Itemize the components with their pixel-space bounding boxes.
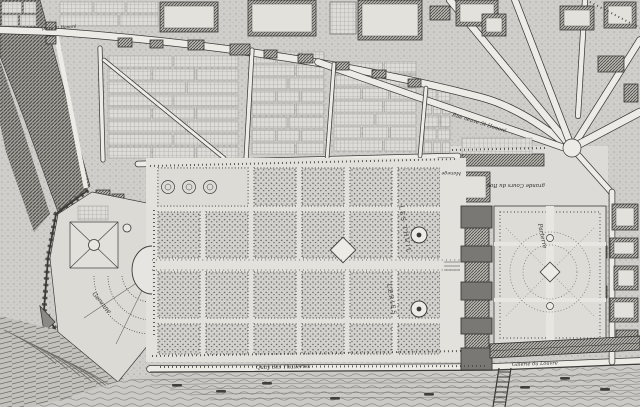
bosquet bbox=[350, 324, 392, 354]
building bbox=[230, 44, 250, 55]
bosquet bbox=[350, 212, 392, 258]
garden-plot bbox=[277, 130, 299, 141]
garden-plot bbox=[127, 2, 158, 13]
garden-plot bbox=[390, 127, 416, 138]
garden-plot bbox=[108, 121, 185, 132]
garden-plot bbox=[252, 143, 294, 154]
bosquet bbox=[398, 168, 440, 206]
garden-plot bbox=[434, 142, 441, 153]
garden-plot bbox=[289, 78, 324, 89]
boat bbox=[424, 393, 434, 396]
garden-plot bbox=[2, 15, 18, 26]
bosquet bbox=[254, 272, 296, 318]
building bbox=[408, 79, 421, 87]
bosquet bbox=[350, 168, 392, 206]
courtyard bbox=[564, 10, 590, 26]
palace-pavilion bbox=[461, 318, 492, 334]
palace-pavilion bbox=[461, 246, 492, 262]
tuileries-palace bbox=[461, 206, 492, 370]
bosquet bbox=[158, 212, 200, 258]
garden-plot bbox=[296, 104, 324, 115]
garden-plot bbox=[153, 147, 195, 158]
parterre-small-basin bbox=[547, 303, 554, 310]
east-terrace bbox=[440, 162, 464, 358]
courtyard bbox=[614, 302, 634, 318]
nw-parterre bbox=[158, 168, 248, 206]
screenshot-frame: porte St Honoré Rue neuve St Honoré LES … bbox=[0, 0, 640, 407]
garden-plot bbox=[443, 142, 450, 153]
bosquet bbox=[302, 272, 344, 318]
garden-plot bbox=[424, 129, 436, 140]
garden-plot bbox=[108, 95, 172, 106]
building bbox=[46, 36, 56, 44]
west-plot bbox=[78, 206, 108, 220]
building bbox=[430, 6, 450, 20]
garden-plot bbox=[296, 143, 324, 154]
boat bbox=[172, 384, 182, 387]
boat bbox=[330, 397, 340, 400]
boat bbox=[216, 390, 226, 393]
building bbox=[118, 38, 132, 47]
boat bbox=[262, 382, 272, 385]
courtyard bbox=[614, 242, 634, 254]
garden-plot bbox=[376, 114, 416, 125]
garden-plot bbox=[334, 127, 361, 138]
garden-plot bbox=[252, 78, 287, 89]
bosquet bbox=[254, 324, 296, 354]
garden-plot bbox=[2, 2, 22, 13]
garden-plot bbox=[108, 82, 185, 93]
garden-plot bbox=[196, 69, 238, 80]
garden-plot bbox=[252, 104, 294, 115]
tuileries-garden bbox=[132, 158, 466, 362]
garden-plot bbox=[363, 88, 389, 99]
garden-plot bbox=[60, 2, 92, 13]
garden-plot bbox=[302, 91, 324, 102]
garden-plot bbox=[153, 69, 195, 80]
bosquet bbox=[302, 168, 344, 206]
bosquet bbox=[350, 272, 392, 318]
garden-plot bbox=[196, 108, 238, 119]
star-plaza bbox=[563, 139, 581, 157]
bosquet bbox=[158, 272, 200, 318]
garden-plot bbox=[252, 130, 275, 141]
garden-plot bbox=[424, 116, 439, 127]
palace-pavilion bbox=[461, 206, 492, 228]
fountain-jet bbox=[417, 233, 422, 238]
garden-plot bbox=[302, 130, 324, 141]
garden-plot bbox=[441, 116, 450, 127]
palace-pavilion bbox=[461, 282, 492, 300]
garden-plot bbox=[187, 82, 238, 93]
court-building bbox=[462, 154, 544, 166]
garden-plot bbox=[438, 129, 450, 140]
courtyard bbox=[618, 270, 634, 286]
label-manege: Manege bbox=[441, 170, 462, 176]
courtyard bbox=[616, 208, 634, 226]
garden-plot bbox=[334, 88, 361, 99]
garden-plot bbox=[108, 147, 151, 158]
garden-plot bbox=[174, 95, 238, 106]
bosquet bbox=[302, 324, 344, 354]
garden-plot bbox=[334, 114, 374, 125]
garden-plot bbox=[334, 101, 382, 112]
bosquet bbox=[158, 324, 200, 354]
small-plot-row bbox=[462, 138, 532, 154]
bosquet bbox=[254, 212, 296, 258]
boat bbox=[600, 388, 610, 391]
garden-plot bbox=[108, 56, 172, 67]
building bbox=[150, 40, 163, 48]
garden-plot bbox=[424, 142, 432, 153]
garden-plot bbox=[363, 127, 389, 138]
garden-plot bbox=[94, 2, 125, 13]
building bbox=[624, 84, 638, 102]
garden-plot bbox=[174, 56, 238, 67]
building bbox=[598, 56, 624, 72]
garden-plot bbox=[108, 134, 172, 145]
garden-plot bbox=[384, 101, 416, 112]
garden-plot bbox=[120, 15, 158, 26]
garden-plot bbox=[334, 140, 382, 151]
courtyard bbox=[164, 6, 214, 28]
courtyard bbox=[486, 18, 502, 32]
bosquet bbox=[206, 272, 248, 318]
knot-basin bbox=[89, 240, 100, 251]
garden-plot bbox=[252, 65, 294, 76]
bosquet bbox=[398, 324, 440, 354]
small-basin bbox=[123, 224, 131, 232]
label-grande-cours-du-roy: grande Cours du Roy bbox=[486, 182, 545, 188]
bosquet bbox=[206, 212, 248, 258]
garden-plot bbox=[384, 140, 416, 151]
garden-plot bbox=[252, 117, 287, 128]
parterre-garden bbox=[494, 206, 606, 344]
building bbox=[264, 50, 277, 58]
garden-plot bbox=[384, 62, 416, 73]
boat bbox=[560, 377, 570, 380]
engraved-map: porte St Honoré Rue neuve St Honoré LES … bbox=[0, 0, 640, 407]
fountain-jet bbox=[417, 307, 422, 312]
building bbox=[372, 70, 386, 78]
courtyard bbox=[252, 4, 312, 32]
garden-plot bbox=[252, 91, 275, 102]
bosquet bbox=[254, 168, 296, 206]
garden-plot bbox=[20, 15, 36, 26]
building bbox=[298, 54, 313, 63]
courtyard bbox=[362, 4, 418, 36]
courtyard bbox=[608, 6, 632, 24]
garden-plot bbox=[289, 117, 324, 128]
garden-plot bbox=[24, 2, 36, 13]
formal-hotel-garden bbox=[330, 2, 356, 34]
building bbox=[188, 40, 204, 50]
building bbox=[336, 62, 349, 70]
garden-plot bbox=[277, 91, 299, 102]
bosquet bbox=[206, 324, 248, 354]
boat bbox=[520, 386, 530, 389]
label-quay-des-thuileries: Quay des Thuileries bbox=[256, 364, 311, 371]
garden-plot bbox=[108, 108, 151, 119]
garden-plot bbox=[187, 121, 238, 132]
